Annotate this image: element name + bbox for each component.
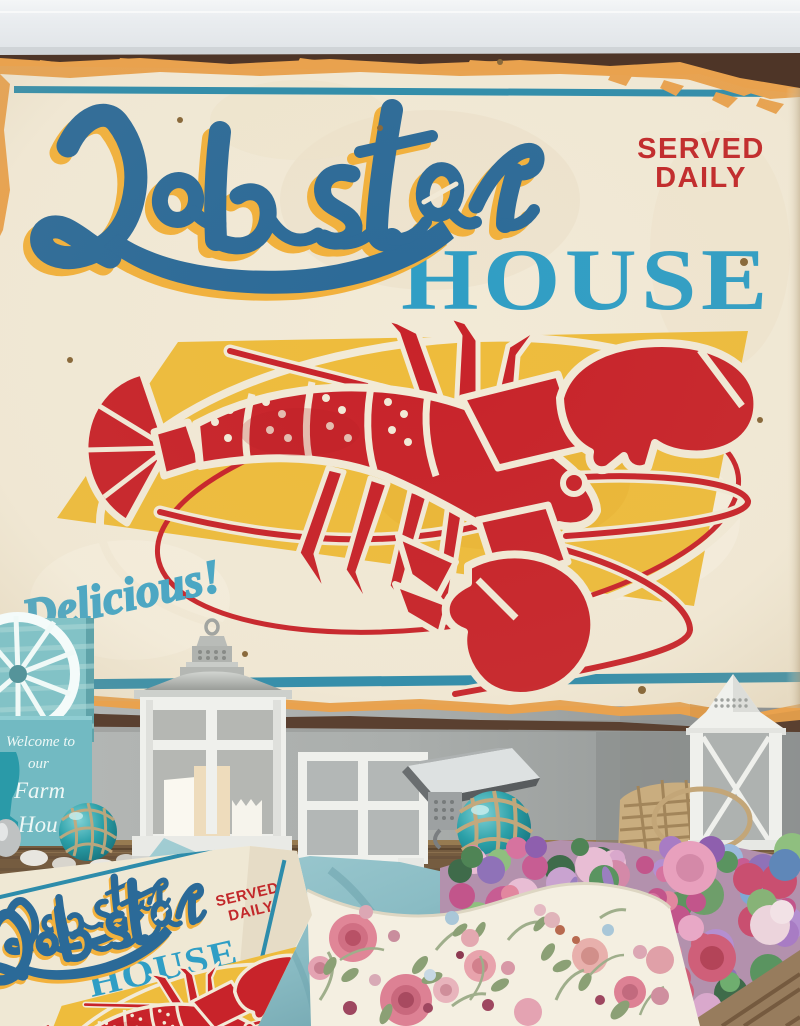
- svg-text:Welcome to: Welcome to: [6, 734, 76, 750]
- svg-text:our: our: [28, 756, 49, 772]
- svg-text:Hou: Hou: [17, 812, 58, 837]
- svg-text:Farm: Farm: [13, 778, 65, 803]
